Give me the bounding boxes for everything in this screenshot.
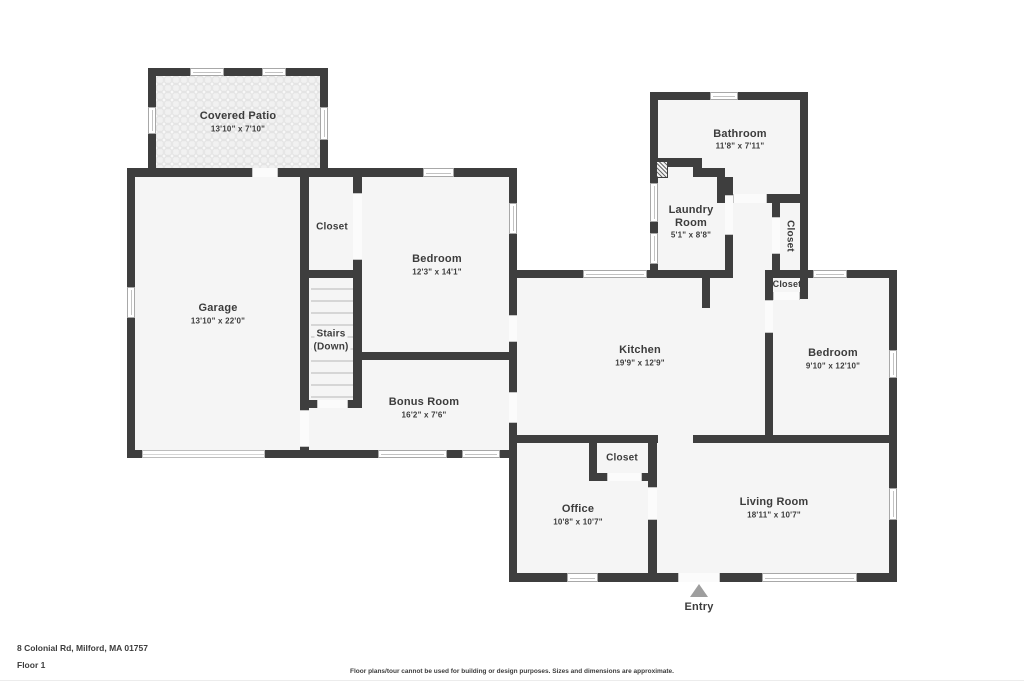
wall: [127, 168, 517, 177]
window: [190, 68, 224, 76]
room-label-bedroom-right: Bedroom: [808, 347, 858, 359]
stair-step: [311, 312, 353, 314]
window: [148, 107, 156, 134]
room-dims-laundry: 5'1" x 8'8": [671, 231, 711, 240]
room-label-stairs: Stairs: [315, 329, 348, 340]
door-opening: [725, 195, 733, 235]
floor-label: Floor 1: [17, 660, 45, 670]
wall: [889, 270, 897, 582]
wall: [650, 270, 733, 278]
room-dims-bathroom: 11'8" x 7'11": [716, 142, 765, 151]
stair-step: [311, 372, 353, 374]
door-opening: [772, 217, 780, 254]
entry-label: Entry: [684, 601, 713, 613]
wall: [693, 435, 897, 443]
room-label-bedroom-top: Bedroom: [412, 253, 462, 265]
room-area: [135, 177, 509, 450]
window: [583, 270, 647, 278]
room-dims-bedroom-right: 9'10" x 12'10": [806, 362, 860, 371]
window: [813, 270, 847, 278]
room-label-closet-office: Closet: [606, 453, 638, 464]
window: [262, 68, 286, 76]
room-label-laundry-2: Room: [675, 217, 707, 229]
entry-arrow-icon: [690, 584, 708, 597]
room-dims-office: 10'8" x 10'7": [553, 518, 603, 527]
room-dims-bonus-room: 16'2" x 7'6": [402, 411, 447, 420]
door-opening: [678, 573, 720, 582]
wall: [800, 92, 808, 278]
window: [509, 203, 517, 234]
stair-step: [311, 300, 353, 302]
disclaimer-text: Floor plans/tour cannot be used for buil…: [350, 668, 674, 675]
room-area: [733, 270, 765, 278]
stair-step: [311, 288, 353, 290]
address-text: 8 Colonial Rd, Milford, MA 01757: [17, 643, 148, 653]
room-label-garage: Garage: [198, 302, 237, 314]
window: [650, 183, 658, 222]
window: [567, 573, 598, 582]
stair-step: [311, 396, 353, 398]
door-opening: [300, 410, 309, 447]
door-opening: [317, 400, 348, 408]
door-opening: [509, 392, 517, 423]
room-label-closet-top: Closet: [316, 222, 348, 233]
window: [320, 107, 328, 140]
room-dims-kitchen: 19'9" x 12'9": [615, 359, 665, 368]
window: [889, 350, 897, 378]
door-opening: [509, 315, 517, 342]
room-label-laundry: Laundry: [669, 204, 714, 216]
room-dims-covered-patio: 13'10" x 7'10": [211, 125, 265, 134]
window: [127, 287, 135, 318]
room-label-office: Office: [562, 503, 594, 515]
wall: [148, 68, 328, 76]
wall: [509, 435, 658, 443]
door-opening: [733, 194, 767, 203]
wall: [702, 278, 710, 308]
chimney-icon: [656, 161, 668, 178]
wall: [353, 352, 517, 360]
room-label-living-room: Living Room: [740, 496, 809, 508]
stair-step: [311, 384, 353, 386]
stair-step: [311, 360, 353, 362]
room-label-closet-hall: Closet: [785, 220, 796, 252]
room-dims-bedroom-top: 12'3" x 14'1": [412, 268, 462, 277]
door-opening: [607, 473, 642, 481]
room-area: [517, 278, 765, 435]
window: [650, 233, 658, 264]
door-opening: [773, 292, 800, 300]
window: [889, 488, 897, 520]
room-dims-living-room: 18'11" x 10'7": [747, 511, 801, 520]
room-dims-garage: 13'10" x 22'0": [191, 317, 245, 326]
wall: [300, 270, 362, 278]
window: [762, 573, 857, 582]
door-opening: [252, 168, 278, 177]
room-label-stairs-down: (Down): [311, 342, 350, 353]
door-opening: [353, 193, 362, 260]
room-area: [658, 435, 693, 443]
window: [462, 450, 500, 458]
room-label-covered-patio: Covered Patio: [200, 110, 277, 122]
door-opening: [648, 487, 657, 520]
garage-door: [142, 450, 265, 458]
divider: [0, 680, 1024, 681]
room-label-closet-bedroom: Closet: [773, 279, 802, 289]
room-label-kitchen: Kitchen: [619, 344, 661, 356]
room-label-bonus-room: Bonus Room: [389, 396, 459, 408]
stair-step: [311, 324, 353, 326]
room-label-bathroom: Bathroom: [713, 128, 767, 140]
wall: [765, 270, 773, 443]
window: [710, 92, 738, 100]
floor-plan: Covered Patio 13'10" x 7'10" Garage 13'1…: [0, 0, 1024, 683]
window: [378, 450, 447, 458]
window: [423, 168, 454, 177]
door-opening: [765, 300, 773, 333]
